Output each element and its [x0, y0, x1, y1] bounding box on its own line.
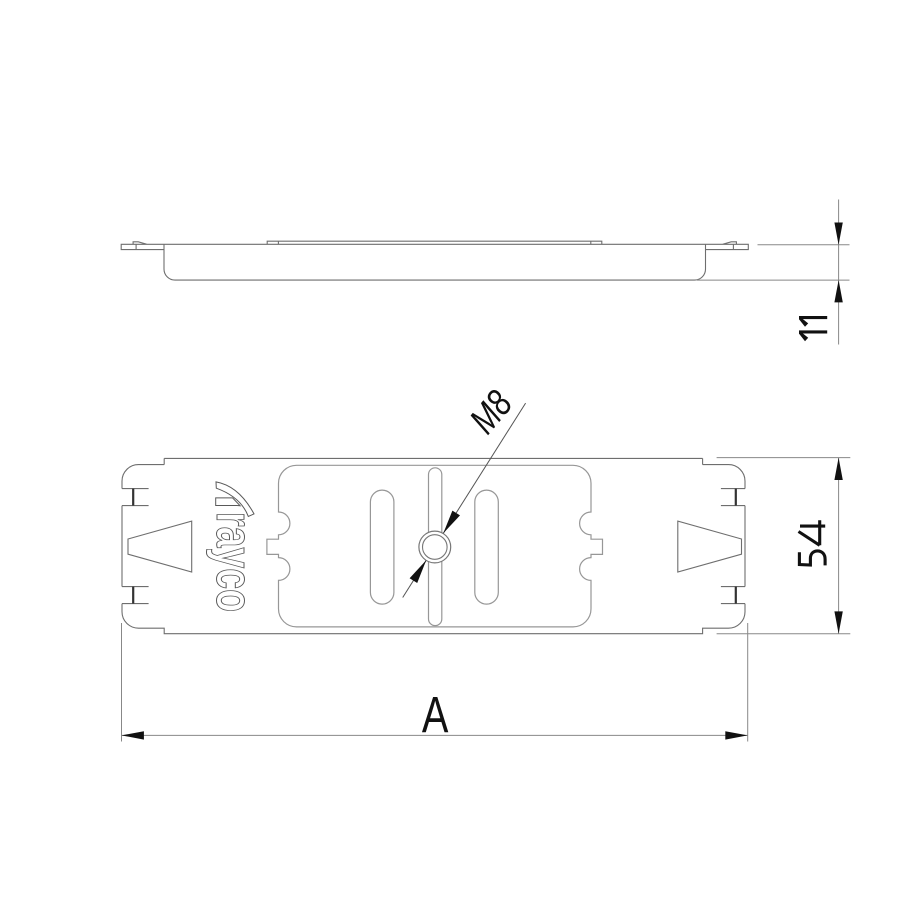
svg-text:rayco: rayco — [206, 512, 263, 612]
svg-text:M8: M8 — [462, 383, 521, 442]
svg-text:A: A — [422, 687, 449, 744]
